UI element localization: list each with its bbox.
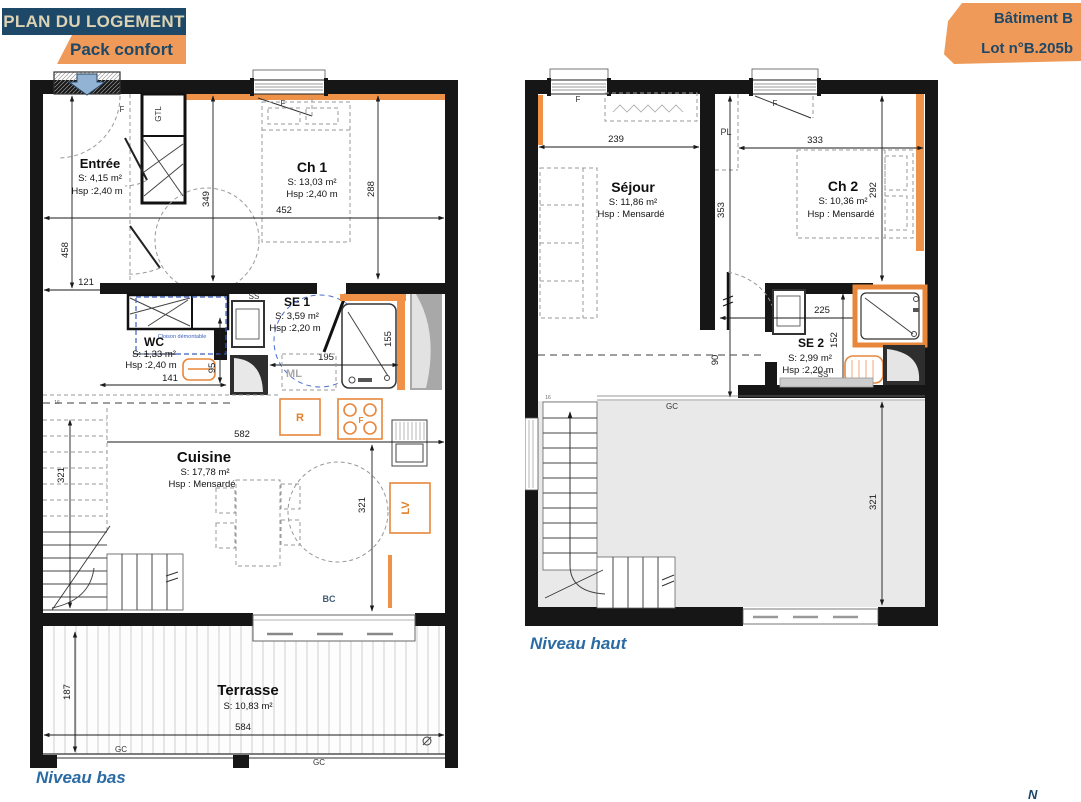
gc-label-left: GC [115,745,127,754]
svg-text:333: 333 [807,135,823,146]
room-hsp-ch2: Hsp : Mensardé [807,209,874,220]
room-area-ch2: S: 10,36 m² [818,196,867,207]
gc-label-haut: GC [666,402,678,411]
floor-plan-niveau-bas: GTL F F Entrée S: 4,15 m² Hsp :2,40 m Ch… [30,68,460,768]
lot-badge: Bâtiment B Lot n°B.205b [944,3,1081,64]
f-label-ch2: F [773,99,778,108]
room-hsp-wc: Hsp :2,40 m [125,360,176,371]
window-left-wall [525,418,538,490]
insulation-strip [148,94,445,100]
room-label-cuisine: Cuisine [177,449,231,466]
svg-text:458: 458 [60,242,71,258]
room-hsp-ch1: Hsp :2,40 m [286,189,337,200]
dim-582: 582 [234,429,250,440]
svg-text:292: 292 [868,182,879,198]
ss-label-se1: SS [249,292,260,301]
lot-label: Lot n°B.205b [966,40,1073,57]
duct-se2 [883,345,925,385]
dim-187: 187 [62,684,73,700]
stair-steps-count: 16 [54,400,60,406]
dishwasher-label: LV [400,501,412,515]
window-sejour [547,69,611,96]
sliding-bay [253,615,415,641]
caption-niveau-haut: Niveau haut [530,634,626,654]
room-area-ch1: S: 13,03 m² [287,177,336,188]
window-bottom [743,609,878,624]
room-label-entree: Entrée [80,156,120,171]
room-hsp-sejour: Hsp : Mensardé [597,209,664,220]
room-label-sejour: Séjour [611,179,655,195]
terrace-guardrail [43,754,445,768]
svg-text:353: 353 [716,202,727,218]
room-hsp-se1: Hsp :2,20 m [269,323,320,334]
duct-shaft [410,286,442,390]
dim-152: 152 [829,332,840,348]
wc-closet [128,295,228,329]
dim-321-haut: 321 [868,494,879,510]
room-area-terrasse: S: 10,83 m² [223,701,272,712]
gtl-label: GTL [154,106,163,122]
room-area-sejour: S: 11,86 m² [609,197,657,208]
shower-se1 [340,294,406,390]
dim-155: 155 [383,331,394,347]
dim-584: 584 [235,722,251,733]
dim-321-cuisine: 321 [357,497,368,513]
entrance-door [54,72,120,158]
kitchen-appliances: R F LV [280,399,430,608]
fridge-label: R [296,412,304,424]
gtl-closet: GTL [142,94,185,203]
window-f-entree-label: F [120,105,125,114]
room-hsp-entree: Hsp :2,40 m [71,186,122,197]
room-area-se1: S: 3,59 m² [275,311,319,322]
bench [780,378,873,387]
svg-text:121: 121 [78,277,94,288]
bed-ch2 [797,150,913,238]
desk [605,93,697,121]
dining-table [216,480,300,566]
room-area-entree: S: 4,15 m² [78,173,122,184]
pack-label: Pack confort [57,35,186,64]
caption-niveau-bas: Niveau bas [36,768,126,788]
accent-right [916,94,924,251]
floor-plan-niveau-haut: F F PL 239 333 353 292 Séjour S: 11,86 m… [525,68,945,643]
turning-circle-kitchen [288,462,388,562]
svg-text:239: 239 [608,134,624,145]
room-label-se2: SE 2 [798,336,824,350]
room-area-wc: S: 1,33 m² [132,349,176,360]
dim-321-stairs: 321 [56,467,67,483]
room-label-wc: WC [144,335,164,349]
f-label-sejour: F [576,95,581,104]
room-area-cuisine: S: 17,78 m² [180,467,229,478]
dim-95: 95 [207,363,218,374]
svg-text:288: 288 [366,181,377,197]
window-ch2 [749,69,821,118]
plan-title: PLAN DU LOGEMENT [2,8,186,35]
room-area-se2: S: 2,99 m² [788,353,832,364]
cloison-demontable-label: Cloison démontable [158,334,207,340]
room-label-ch2: Ch 2 [828,178,859,194]
bc-label: BC [323,594,336,604]
shower-se2 [855,287,925,345]
dim-225: 225 [814,305,830,316]
dim-141: 141 [162,373,178,384]
room-label-ch1: Ch 1 [297,159,328,175]
sofa [540,168,597,318]
stair-steps-count-haut: 16 [545,395,551,401]
dim-90: 90 [710,355,721,366]
svg-text:452: 452 [276,205,292,216]
room-label-terrasse: Terrasse [217,682,278,699]
ml-label: ML [286,368,302,380]
ss-label-se2: SS [818,370,829,379]
svg-text:349: 349 [201,191,212,207]
window-f-ch1-label: F [281,99,286,108]
vanity-se2 [773,290,805,334]
duct-dark [230,355,268,395]
gc-label-right: GC [313,758,325,767]
staircase-bas: 16 [43,400,183,610]
oven-label: F [359,416,364,425]
accent-left [538,95,543,145]
washbasin-se1 [232,301,264,347]
building-label: Bâtiment B [966,10,1073,27]
